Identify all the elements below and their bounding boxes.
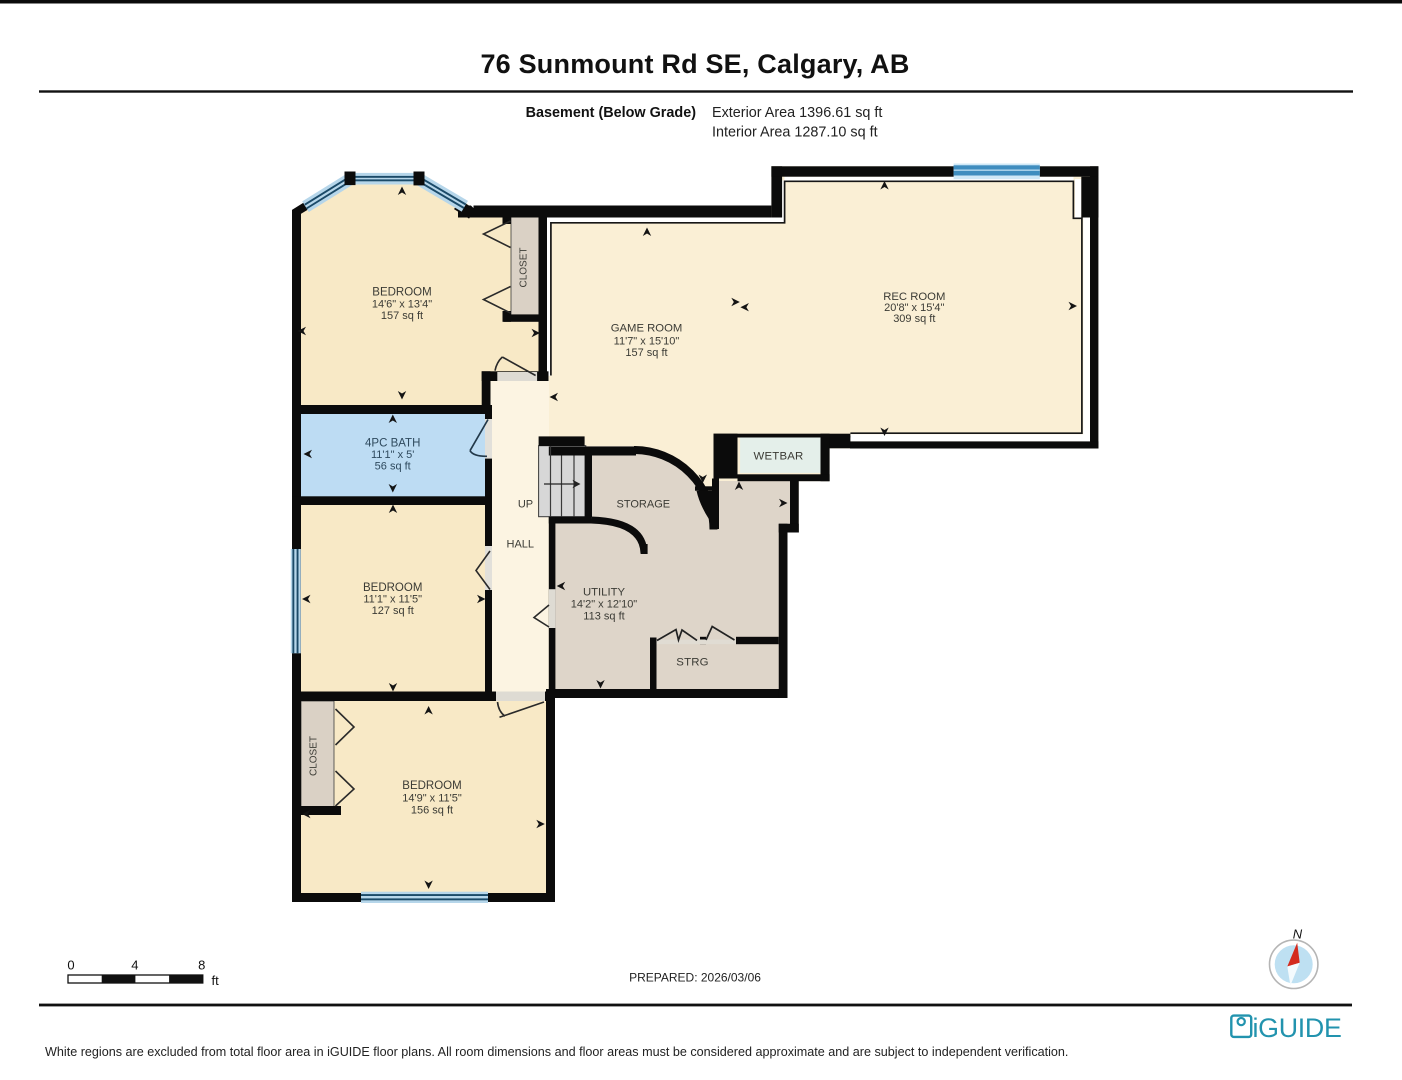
svg-text:Exterior Area 1396.61 sq ft: Exterior Area 1396.61 sq ft	[712, 105, 882, 121]
svg-text:iGUIDE: iGUIDE	[1253, 1013, 1342, 1043]
svg-text:76 Sunmount Rd SE, Calgary, AB: 76 Sunmount Rd SE, Calgary, AB	[480, 49, 909, 79]
svg-text:CLOSET: CLOSET	[309, 736, 320, 776]
svg-text:309 sq ft: 309 sq ft	[893, 313, 935, 325]
svg-text:4PC BATH: 4PC BATH	[365, 438, 420, 450]
svg-text:14'2" x 12'10": 14'2" x 12'10"	[571, 599, 638, 611]
svg-text:CLOSET: CLOSET	[518, 247, 529, 287]
svg-text:Basement (Below Grade): Basement (Below Grade)	[526, 105, 697, 121]
svg-text:157 sq ft: 157 sq ft	[381, 310, 423, 322]
svg-text:White regions are excluded fro: White regions are excluded from total fl…	[45, 1045, 1068, 1059]
svg-text:UP: UP	[518, 499, 533, 511]
svg-text:4: 4	[131, 958, 138, 973]
svg-text:PREPARED: 2026/03/06: PREPARED: 2026/03/06	[629, 971, 761, 985]
svg-text:BEDROOM: BEDROOM	[372, 287, 431, 299]
svg-text:8: 8	[198, 958, 205, 973]
svg-text:14'6" x 13'4": 14'6" x 13'4"	[372, 299, 432, 311]
svg-text:11'7" x 15'10": 11'7" x 15'10"	[614, 336, 680, 348]
svg-text:156 sq ft: 156 sq ft	[411, 805, 453, 817]
svg-text:113 sq ft: 113 sq ft	[583, 611, 624, 623]
svg-text:Interior Area 1287.10 sq ft: Interior Area 1287.10 sq ft	[712, 125, 878, 141]
svg-text:11'1" x 5': 11'1" x 5'	[371, 449, 414, 461]
svg-text:157 sq ft: 157 sq ft	[625, 347, 667, 359]
svg-text:0: 0	[67, 958, 74, 973]
svg-text:BEDROOM: BEDROOM	[402, 780, 461, 792]
svg-text:56 sq ft: 56 sq ft	[375, 461, 411, 473]
svg-text:BEDROOM: BEDROOM	[363, 582, 422, 594]
svg-text:14'9" x 11'5": 14'9" x 11'5"	[402, 793, 462, 805]
svg-text:STORAGE: STORAGE	[617, 499, 671, 511]
svg-text:127 sq ft: 127 sq ft	[372, 605, 414, 617]
svg-text:N: N	[1293, 927, 1303, 942]
svg-text:ft: ft	[212, 973, 220, 988]
svg-text:GAME ROOM: GAME ROOM	[611, 323, 683, 335]
svg-text:STRG: STRG	[676, 657, 708, 669]
svg-text:11'1" x 11'5": 11'1" x 11'5"	[363, 594, 422, 606]
svg-text:HALL: HALL	[507, 539, 535, 551]
svg-text:UTILITY: UTILITY	[583, 587, 626, 599]
svg-text:WETBAR: WETBAR	[754, 451, 804, 463]
